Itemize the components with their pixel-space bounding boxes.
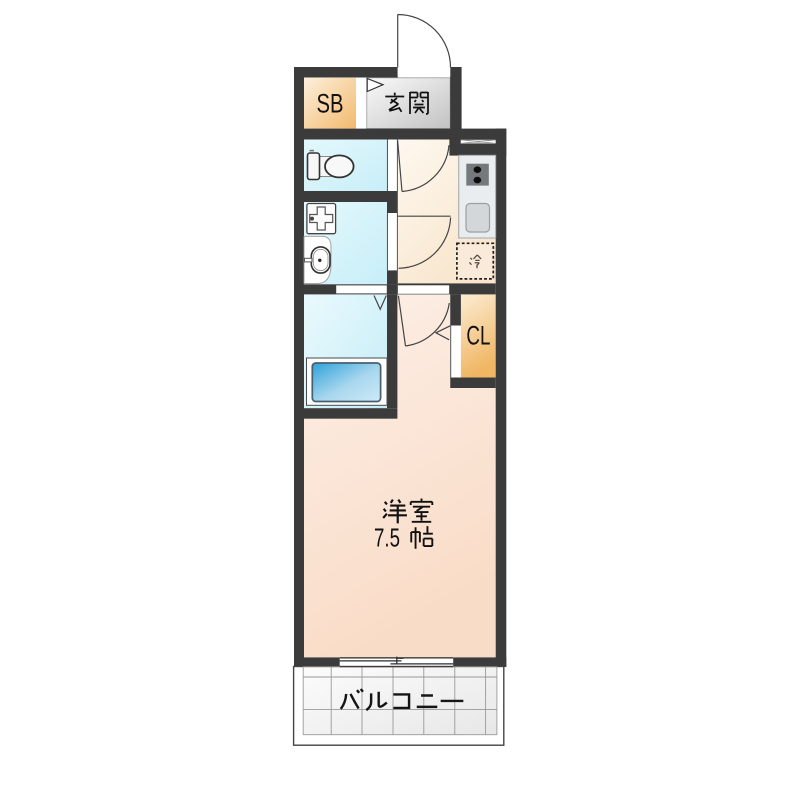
svg-text:SB: SB	[317, 89, 344, 119]
svg-text:7.5: 7.5	[374, 523, 400, 553]
svg-text:CL: CL	[466, 321, 490, 351]
